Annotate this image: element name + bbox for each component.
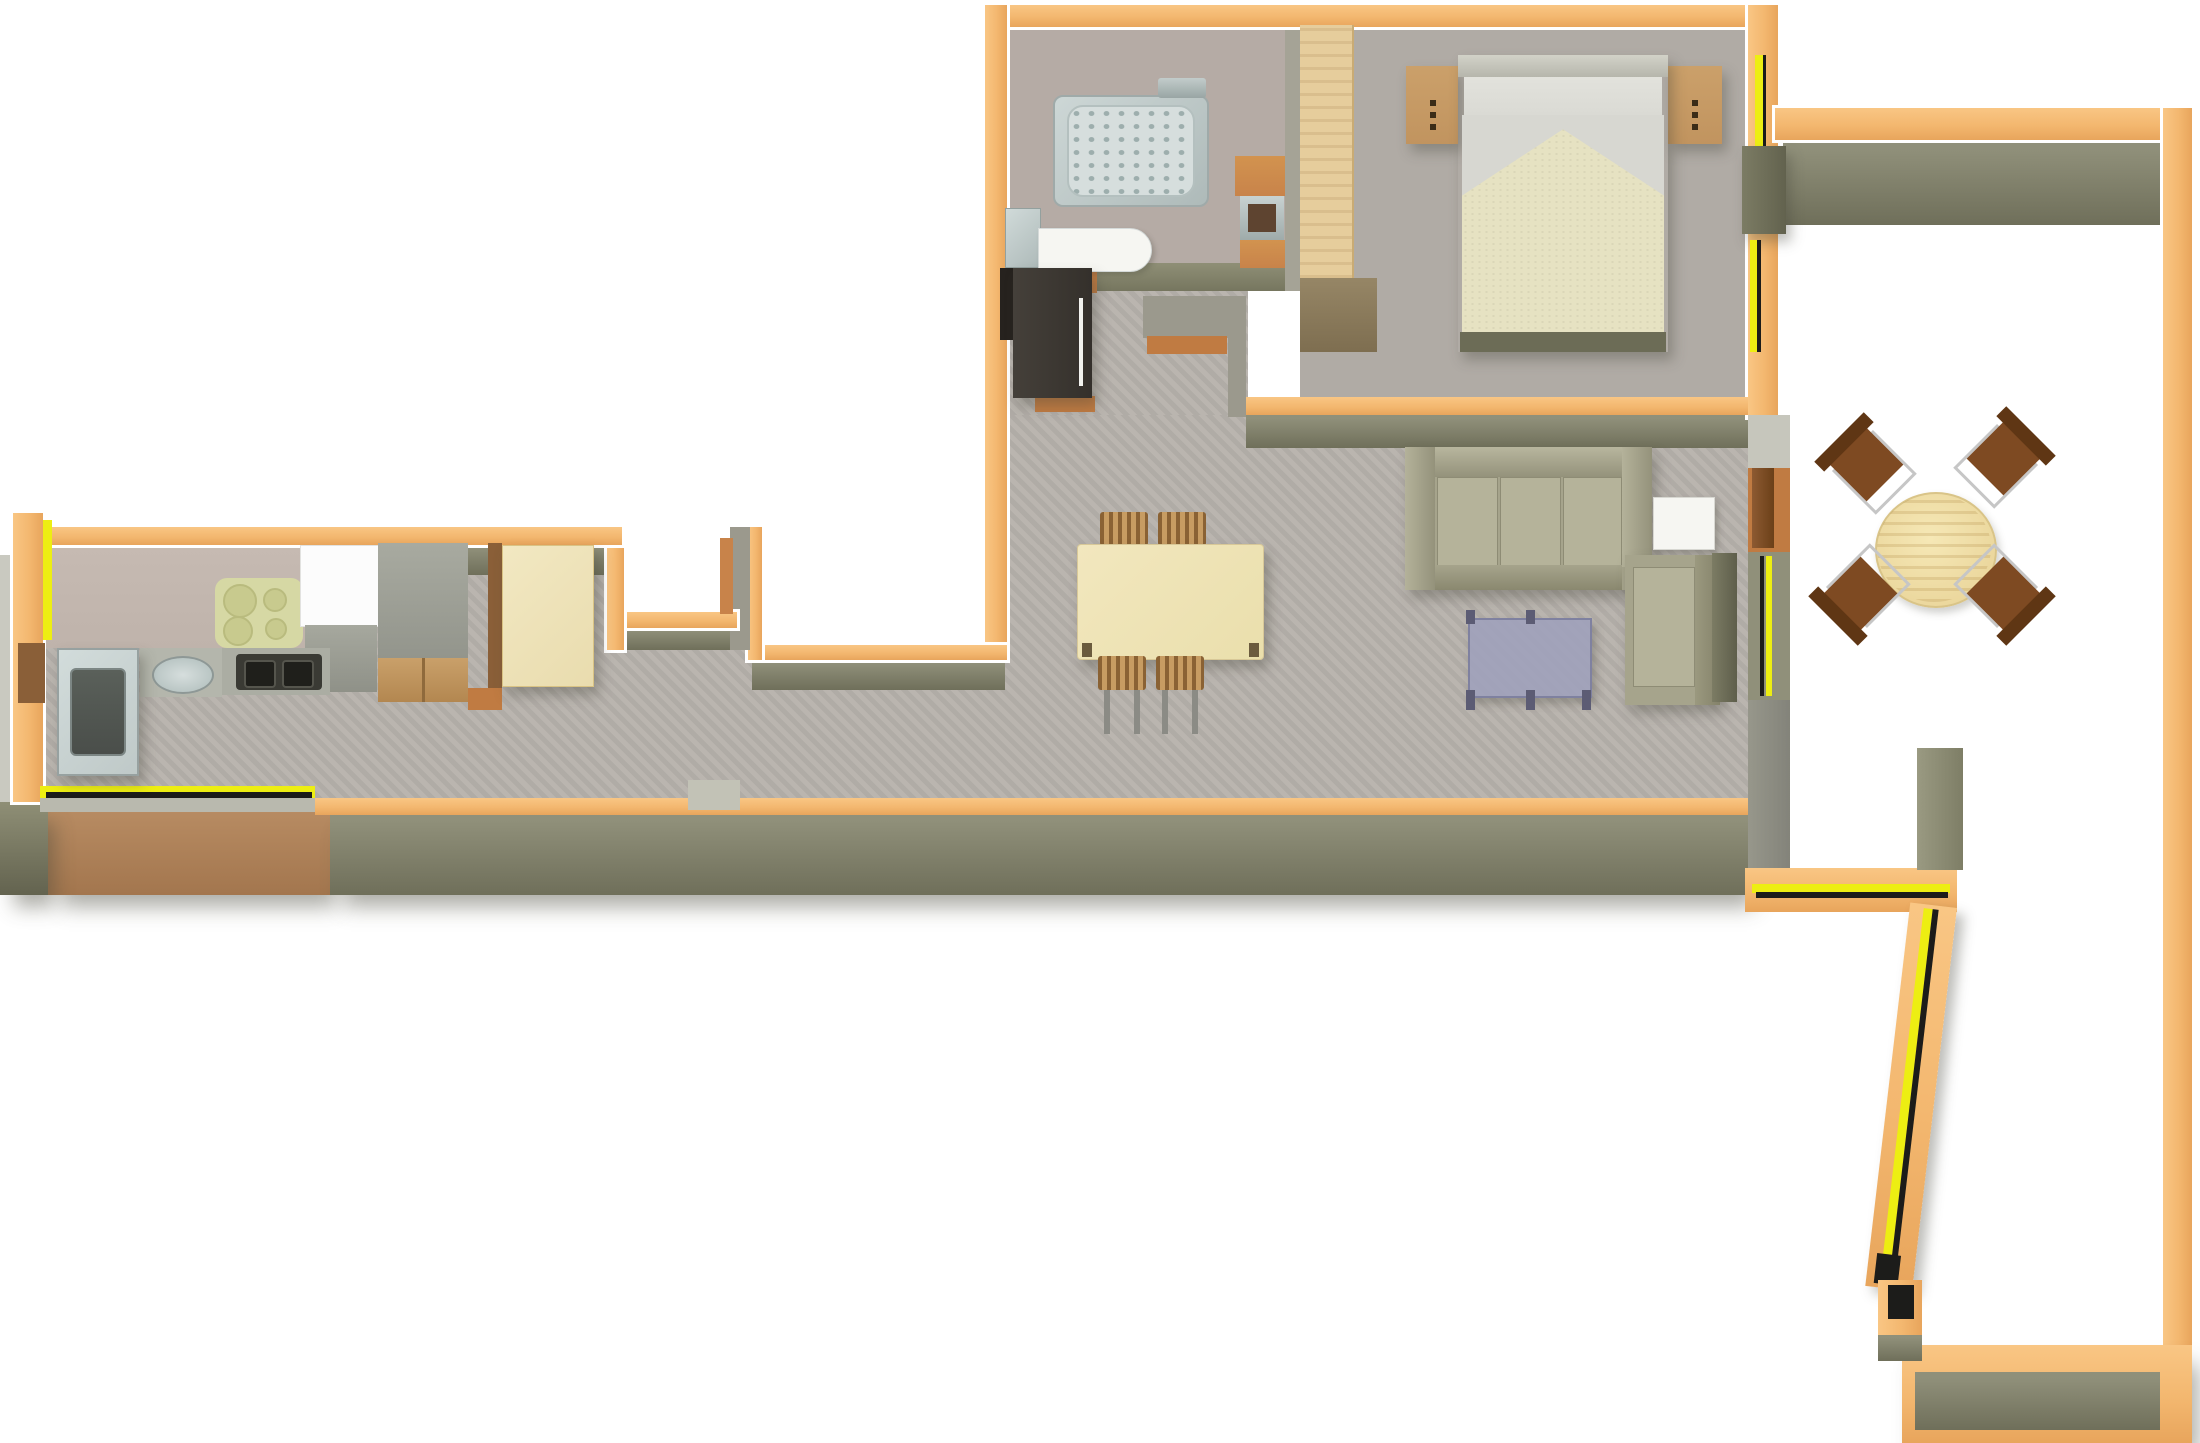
bath-bedroom-divider [1285, 25, 1300, 291]
se-window-glass [1756, 892, 1948, 898]
sofa-cushion-1 [1437, 477, 1498, 567]
notch-south-face [624, 628, 737, 650]
coffee-table-leg [1526, 690, 1535, 710]
sofa-cushion-2 [1500, 477, 1561, 567]
terrace-south-face [1915, 1372, 2160, 1430]
kitchen-sink-unit [57, 648, 139, 776]
bed-headboard [1458, 55, 1668, 77]
table-leg [1249, 643, 1259, 657]
corridor-south-sill [688, 780, 740, 810]
sofa-arm-left [1405, 447, 1435, 590]
nightstand-right-handles [1692, 100, 1698, 106]
hall-wall-vertical [1228, 296, 1246, 417]
sofa [1405, 447, 1652, 590]
hob-burner-large [223, 584, 257, 618]
bedroom-window-north-glass [1763, 55, 1766, 147]
se-pillar [1917, 748, 1963, 870]
vanity-shelf-lower [1240, 240, 1285, 268]
vanity-appliance [1240, 196, 1284, 240]
north-wall [985, 5, 1778, 27]
lightwell-west-wall [748, 527, 762, 660]
armchair [1625, 555, 1720, 705]
bedroom-terrace-door [1742, 146, 1786, 234]
nightstand-left [1406, 66, 1458, 144]
kitchen-wood-drawers [378, 658, 468, 702]
living-east-window [1748, 552, 1790, 700]
bedroom-window-north [1755, 55, 1763, 147]
coffee-table-leg [1582, 690, 1591, 710]
dining-chair-bottom-2 [1156, 656, 1204, 690]
coffee-table-leg [1466, 610, 1475, 624]
kitchen-west-window [43, 520, 52, 640]
toilet-cistern [1005, 208, 1041, 268]
kitchen-south-window-glass [46, 792, 312, 798]
dining-chair-top-1 [1100, 512, 1148, 546]
entry-door-leaf [1013, 268, 1092, 398]
nightstand-left-handles [1430, 100, 1436, 106]
south-wall-face [330, 812, 1748, 895]
table-leg [1082, 643, 1092, 657]
bedroom-window-south-glass [1757, 240, 1761, 352]
burner-right [282, 660, 314, 688]
living-east-wall-lower [1748, 700, 1790, 870]
bedroom-window-south [1750, 240, 1757, 352]
kitchen-door-leaf [502, 545, 594, 687]
hall-wall-block [1143, 296, 1230, 338]
terrace-east-wall [2163, 108, 2192, 1443]
east-window-glass [1760, 556, 1764, 696]
entry-threshold [1035, 396, 1095, 412]
shower-tray [1053, 95, 1209, 207]
south-wall [315, 798, 1748, 815]
hall-threshold [1147, 336, 1227, 354]
east-window-frame [1766, 556, 1772, 696]
entry-door-handle [1079, 298, 1083, 386]
counter-basin [152, 656, 214, 694]
sofa-cushion-3 [1563, 477, 1622, 567]
kitchen-door-threshold [468, 688, 502, 710]
living-terrace-door-leaf [1752, 468, 1774, 548]
chair-legs-1 [1104, 690, 1110, 734]
diagonal-window-frame [1883, 908, 1933, 1255]
south-wall-face-brown [48, 812, 330, 895]
coffee-table [1468, 618, 1592, 698]
terrace-diagonal-wall [1865, 903, 1957, 1292]
lightwell-void [746, 498, 1007, 648]
terrace-north-face [1783, 140, 2178, 225]
sofa-arm-right [1622, 447, 1652, 567]
terrace-sw-face [1878, 1335, 1922, 1361]
lightwell-pillar [730, 527, 750, 650]
kitchen-west-door-post [18, 643, 45, 703]
living-north-wall [1246, 397, 1748, 415]
bed-footboard [1460, 332, 1666, 352]
wardrobe [1300, 25, 1354, 278]
shower-head [1158, 78, 1206, 98]
living-east-wall-upper [1748, 415, 1790, 471]
tv-column [1712, 553, 1737, 702]
bed-sheet-fold [1462, 115, 1664, 352]
dining-chair-top-2 [1158, 512, 1206, 546]
bed-duvet [1462, 115, 1664, 352]
wardrobe-lower-cabinet [1300, 278, 1377, 352]
drawer-divider [422, 658, 425, 702]
hob-mat [215, 578, 303, 648]
vanity-appliance-door [1248, 204, 1276, 232]
cooktop-panel [236, 654, 322, 690]
terrace-north-wall [1775, 108, 2192, 140]
nightstand-right [1668, 66, 1722, 144]
sofa-front-edge [1435, 565, 1622, 590]
fridge [300, 545, 389, 627]
terrace-chair-top-left [1823, 421, 1914, 512]
lightwell-south-face [752, 660, 1005, 690]
living-north-wall-face [1246, 415, 1748, 448]
notch-south-wall [624, 612, 737, 628]
hob-burner-small [263, 588, 287, 612]
armchair-cushion [1633, 567, 1695, 687]
kitchen-door-frame [488, 543, 502, 690]
corridor-jog-wall [607, 527, 624, 650]
washbasin [1038, 228, 1152, 272]
kitchen-south-sill [40, 798, 315, 812]
double-bed [1458, 55, 1668, 352]
floor-plan [0, 0, 2200, 1443]
notch-door-post [720, 538, 733, 614]
chair-legs-2 [1162, 690, 1168, 734]
sw-corner-glass-cap [1888, 1285, 1914, 1319]
side-table [1653, 497, 1715, 550]
counter-sink-module [140, 648, 222, 697]
dining-chair-bottom-1 [1098, 656, 1146, 690]
coffee-table-leg [1526, 610, 1535, 624]
cooktop-module [222, 648, 330, 695]
sofa-back [1405, 447, 1652, 477]
lightwell-south-wall [748, 645, 1007, 660]
kitchen-north-wall [20, 527, 622, 545]
burner-left [244, 660, 276, 688]
diagonal-window-glass [1891, 909, 1938, 1263]
dining-table [1077, 544, 1264, 660]
hob-burner-small-2 [265, 618, 287, 640]
sink-basin [70, 668, 126, 756]
south-west-corner [0, 802, 48, 895]
west-facade-sliver [0, 555, 14, 802]
terrace-chair-top-right [1957, 415, 2048, 506]
hob-burner-large-2 [223, 616, 253, 646]
entry-door-jamb [1000, 268, 1013, 340]
vanity-shelf-upper [1235, 156, 1285, 196]
shower-tray-floor [1067, 105, 1195, 197]
coffee-table-leg [1466, 690, 1475, 710]
kitchen-cabinet-column [378, 543, 468, 658]
